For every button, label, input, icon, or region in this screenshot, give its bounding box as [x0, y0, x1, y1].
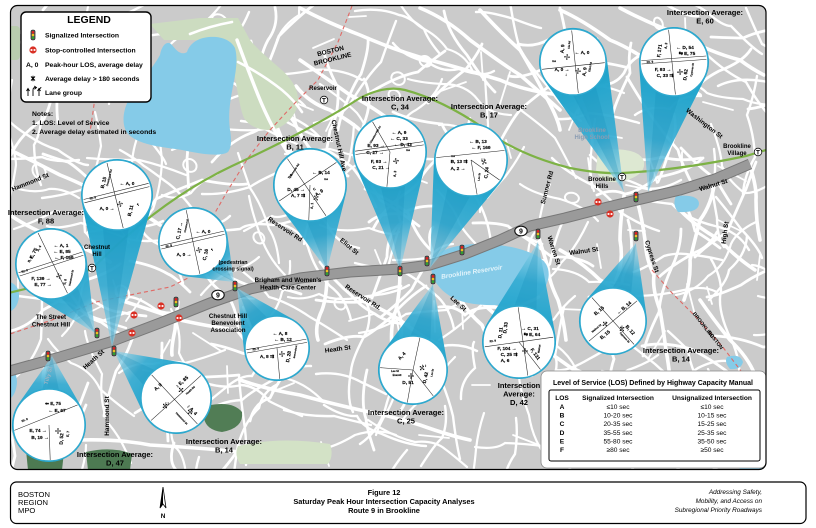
svg-text:D, 45 →: D, 45 →	[287, 187, 305, 193]
svg-text:B, 11: B, 11	[286, 143, 304, 152]
svg-text:55-80 sec: 55-80 sec	[604, 438, 634, 445]
svg-text:← F, 169: ← F, 169	[471, 145, 491, 151]
svg-text:Signalized Intersection: Signalized Intersection	[582, 395, 654, 402]
svg-text:Saturday Peak Hour Intersectio: Saturday Peak Hour Intersection Capacity…	[293, 497, 474, 506]
svg-text:E, 7: E, 7	[66, 431, 70, 437]
svg-text:Chestnut Hill: Chestnut Hill	[32, 322, 70, 329]
svg-text:F, 139 →: F, 139 →	[31, 276, 50, 282]
svg-text:← A, 0: ← A, 0	[575, 50, 590, 56]
svg-text:A, 1: A, 1	[310, 203, 314, 210]
svg-text:B, 17: B, 17	[480, 111, 498, 120]
svg-text:Hills: Hills	[596, 184, 609, 190]
svg-text:Figure 12: Figure 12	[368, 488, 401, 497]
svg-text:B: B	[560, 413, 565, 420]
svg-text:Brookline: Brookline	[723, 144, 751, 150]
svg-text:Village: Village	[727, 151, 747, 157]
svg-text:LOS: LOS	[555, 395, 569, 402]
svg-text:Average delay > 180 seconds: Average delay > 180 seconds	[45, 76, 140, 83]
svg-text:A, 3: A, 3	[393, 170, 398, 177]
svg-text:Hammond St: Hammond St	[104, 395, 111, 435]
svg-text:C, 21 →: C, 21 →	[372, 165, 390, 171]
svg-text:F, 88: F, 88	[38, 217, 54, 226]
svg-text:E, 93 →: E, 93 →	[367, 143, 384, 149]
svg-text:Reservoir: Reservoir	[309, 86, 337, 92]
svg-text:F: F	[560, 447, 564, 454]
svg-text:D, 47: D, 47	[106, 459, 124, 468]
svg-text:A, 8 ⇉: A, 8 ⇉	[260, 354, 275, 360]
svg-text:⇆ E, 75: ⇆ E, 75	[679, 50, 696, 57]
svg-text:A, 0 →: A, 0 →	[555, 67, 570, 73]
svg-text:N: N	[161, 513, 166, 520]
svg-text:E, 60: E, 60	[696, 17, 714, 26]
svg-text:35-50 sec: 35-50 sec	[698, 438, 728, 445]
svg-text:Rt. 9: Rt. 9	[647, 60, 654, 64]
svg-text:20-35 sec: 20-35 sec	[604, 421, 634, 428]
svg-text:crossing signal): crossing signal)	[212, 267, 254, 273]
svg-text:→ C, 31: → C, 31	[521, 326, 539, 332]
svg-text:Chestnut: Chestnut	[84, 245, 110, 251]
svg-text:⇐ E, 75: ⇐ E, 75	[45, 401, 61, 406]
svg-text:C, 34: C, 34	[391, 103, 410, 112]
svg-text:← E, 85: ← E, 85	[53, 249, 71, 255]
svg-text:MPO: MPO	[18, 506, 35, 515]
svg-text:Subregional Priority Roadways: Subregional Priority Roadways	[675, 507, 763, 514]
svg-text:B, 14: B, 14	[672, 355, 691, 364]
svg-text:Lee St: Lee St	[391, 369, 399, 373]
svg-text:← D, 54: ← D, 54	[676, 45, 694, 51]
svg-text:A, 7 ⇉: A, 7 ⇉	[291, 193, 306, 199]
svg-text:ms: ms	[552, 59, 556, 63]
svg-text:Benevolent: Benevolent	[211, 320, 244, 327]
svg-text:9: 9	[519, 229, 523, 236]
svg-text:A, 0: A, 0	[26, 62, 39, 69]
svg-text:1. LOS: Level of Service: 1. LOS: Level of Service	[32, 120, 110, 127]
svg-text:A: A	[560, 404, 565, 411]
svg-text:D, 42: D, 42	[510, 398, 528, 407]
svg-text:A, 6: A, 6	[501, 358, 510, 364]
svg-text:ms: ms	[324, 177, 328, 181]
svg-text:Lane group: Lane group	[45, 90, 82, 97]
svg-text:Association: Association	[210, 327, 245, 334]
svg-text:C, 25: C, 25	[397, 417, 415, 426]
svg-text:← E, 67: ← E, 67	[48, 408, 66, 414]
svg-text:The Street: The Street	[36, 314, 66, 321]
svg-text:ms: ms	[406, 148, 410, 152]
svg-text:35-55 sec: 35-55 sec	[604, 430, 634, 437]
svg-text:D, 51: D, 51	[402, 380, 414, 386]
svg-text:C: C	[560, 421, 565, 428]
svg-text:Peak-hour LOS, average delay: Peak-hour LOS, average delay	[45, 62, 143, 69]
svg-text:Everett: Everett	[393, 373, 402, 377]
svg-text:10-15 sec: 10-15 sec	[698, 413, 728, 420]
svg-text:ms: ms	[451, 154, 455, 158]
svg-text:High School: High School	[575, 135, 610, 141]
svg-text:E, 77 →: E, 77 →	[34, 282, 51, 288]
svg-text:10-20 sec: 10-20 sec	[604, 413, 634, 420]
svg-text:Signalized Intersection: Signalized Intersection	[45, 33, 119, 40]
svg-text:E, 74 →: E, 74 →	[29, 428, 46, 434]
svg-text:T: T	[90, 265, 94, 272]
svg-text:F, 93 →: F, 93 →	[655, 67, 672, 73]
svg-text:2. Average delay estimated in: 2. Average delay estimated in seconds	[32, 129, 156, 136]
svg-text:A, 2 →: A, 2 →	[451, 166, 466, 172]
svg-text:← B, 12: ← B, 12	[274, 337, 292, 343]
svg-text:Brookline: Brookline	[588, 177, 616, 183]
svg-text:Hill: Hill	[92, 252, 102, 258]
svg-text:D: D	[560, 430, 565, 437]
svg-text:← C, 33: ← C, 33	[390, 136, 408, 142]
svg-text:(pedestrian: (pedestrian	[218, 260, 247, 266]
svg-text:Brookline: Brookline	[578, 128, 606, 134]
svg-text:LEGEND: LEGEND	[67, 14, 111, 26]
svg-text:← B, 13: ← B, 13	[469, 139, 487, 145]
svg-text:≥80 sec: ≥80 sec	[606, 447, 630, 454]
svg-text:C, 33 ⇉: C, 33 ⇉	[657, 73, 675, 79]
svg-text:Stop-controlled Intersection: Stop-controlled Intersection	[45, 48, 136, 55]
svg-text:Route 9 in Brookline: Route 9 in Brookline	[348, 506, 420, 515]
svg-text:← B, 14: ← B, 14	[312, 170, 330, 176]
svg-text:A, 0 →: A, 0 →	[177, 252, 192, 258]
svg-text:← A, 9: ← A, 9	[392, 130, 407, 136]
svg-text:A, 9: A, 9	[560, 44, 567, 54]
svg-text:E: E	[560, 438, 565, 445]
svg-text:← F, 169: ← F, 169	[54, 255, 74, 261]
svg-text:Mobility, and Access on: Mobility, and Access on	[696, 498, 763, 505]
svg-text:F, 104 →: F, 104 →	[497, 346, 516, 352]
svg-text:9: 9	[216, 293, 220, 300]
svg-text:T: T	[756, 149, 760, 156]
svg-text:Level of Service (LOS) Defined: Level of Service (LOS) Defined by Highwa…	[553, 380, 753, 387]
svg-text:↑ ↕: ↑ ↕	[421, 363, 426, 368]
svg-text:≥50 sec: ≥50 sec	[700, 447, 724, 454]
svg-text:B, 13 ⇉: B, 13 ⇉	[451, 159, 469, 165]
svg-text:15-25 sec: 15-25 sec	[698, 421, 728, 428]
svg-text:← A, 8: ← A, 8	[273, 331, 288, 337]
svg-text:Notes:: Notes:	[32, 111, 53, 118]
svg-text:F, 93 →: F, 93 →	[371, 159, 388, 165]
svg-text:C, 27 →: C, 27 →	[366, 150, 384, 156]
svg-text:T: T	[322, 97, 326, 104]
svg-text:Brigham and Women's: Brigham and Women's	[255, 277, 322, 284]
svg-text:D, 52: D, 52	[59, 433, 66, 445]
svg-text:B, 14: B, 14	[215, 446, 234, 455]
svg-text:A, 0 →: A, 0 →	[100, 206, 115, 212]
svg-text:Health Care Center: Health Care Center	[260, 285, 316, 292]
svg-text:← A, 0: ← A, 0	[120, 181, 135, 187]
svg-text:Addressing Safety,: Addressing Safety,	[708, 489, 762, 496]
svg-text:≤10 sec: ≤10 sec	[700, 404, 724, 411]
svg-text:T: T	[620, 174, 624, 181]
svg-text:Chestnut Hill: Chestnut Hill	[209, 313, 247, 320]
svg-text:← A, 1: ← A, 1	[54, 243, 69, 249]
svg-text:B, 19 →: B, 19 →	[31, 435, 49, 441]
svg-text:Unsignalized Intersection: Unsignalized Intersection	[672, 395, 752, 402]
svg-text:≤10 sec: ≤10 sec	[606, 404, 630, 411]
svg-text:⇆ E, 64: ⇆ E, 64	[524, 331, 541, 338]
svg-text:25-35 sec: 25-35 sec	[698, 430, 728, 437]
svg-text:← A, 0: ← A, 0	[196, 229, 211, 235]
svg-text:↓: ↓	[565, 72, 567, 77]
svg-text:C, 25 ⇉: C, 25 ⇉	[501, 352, 519, 358]
